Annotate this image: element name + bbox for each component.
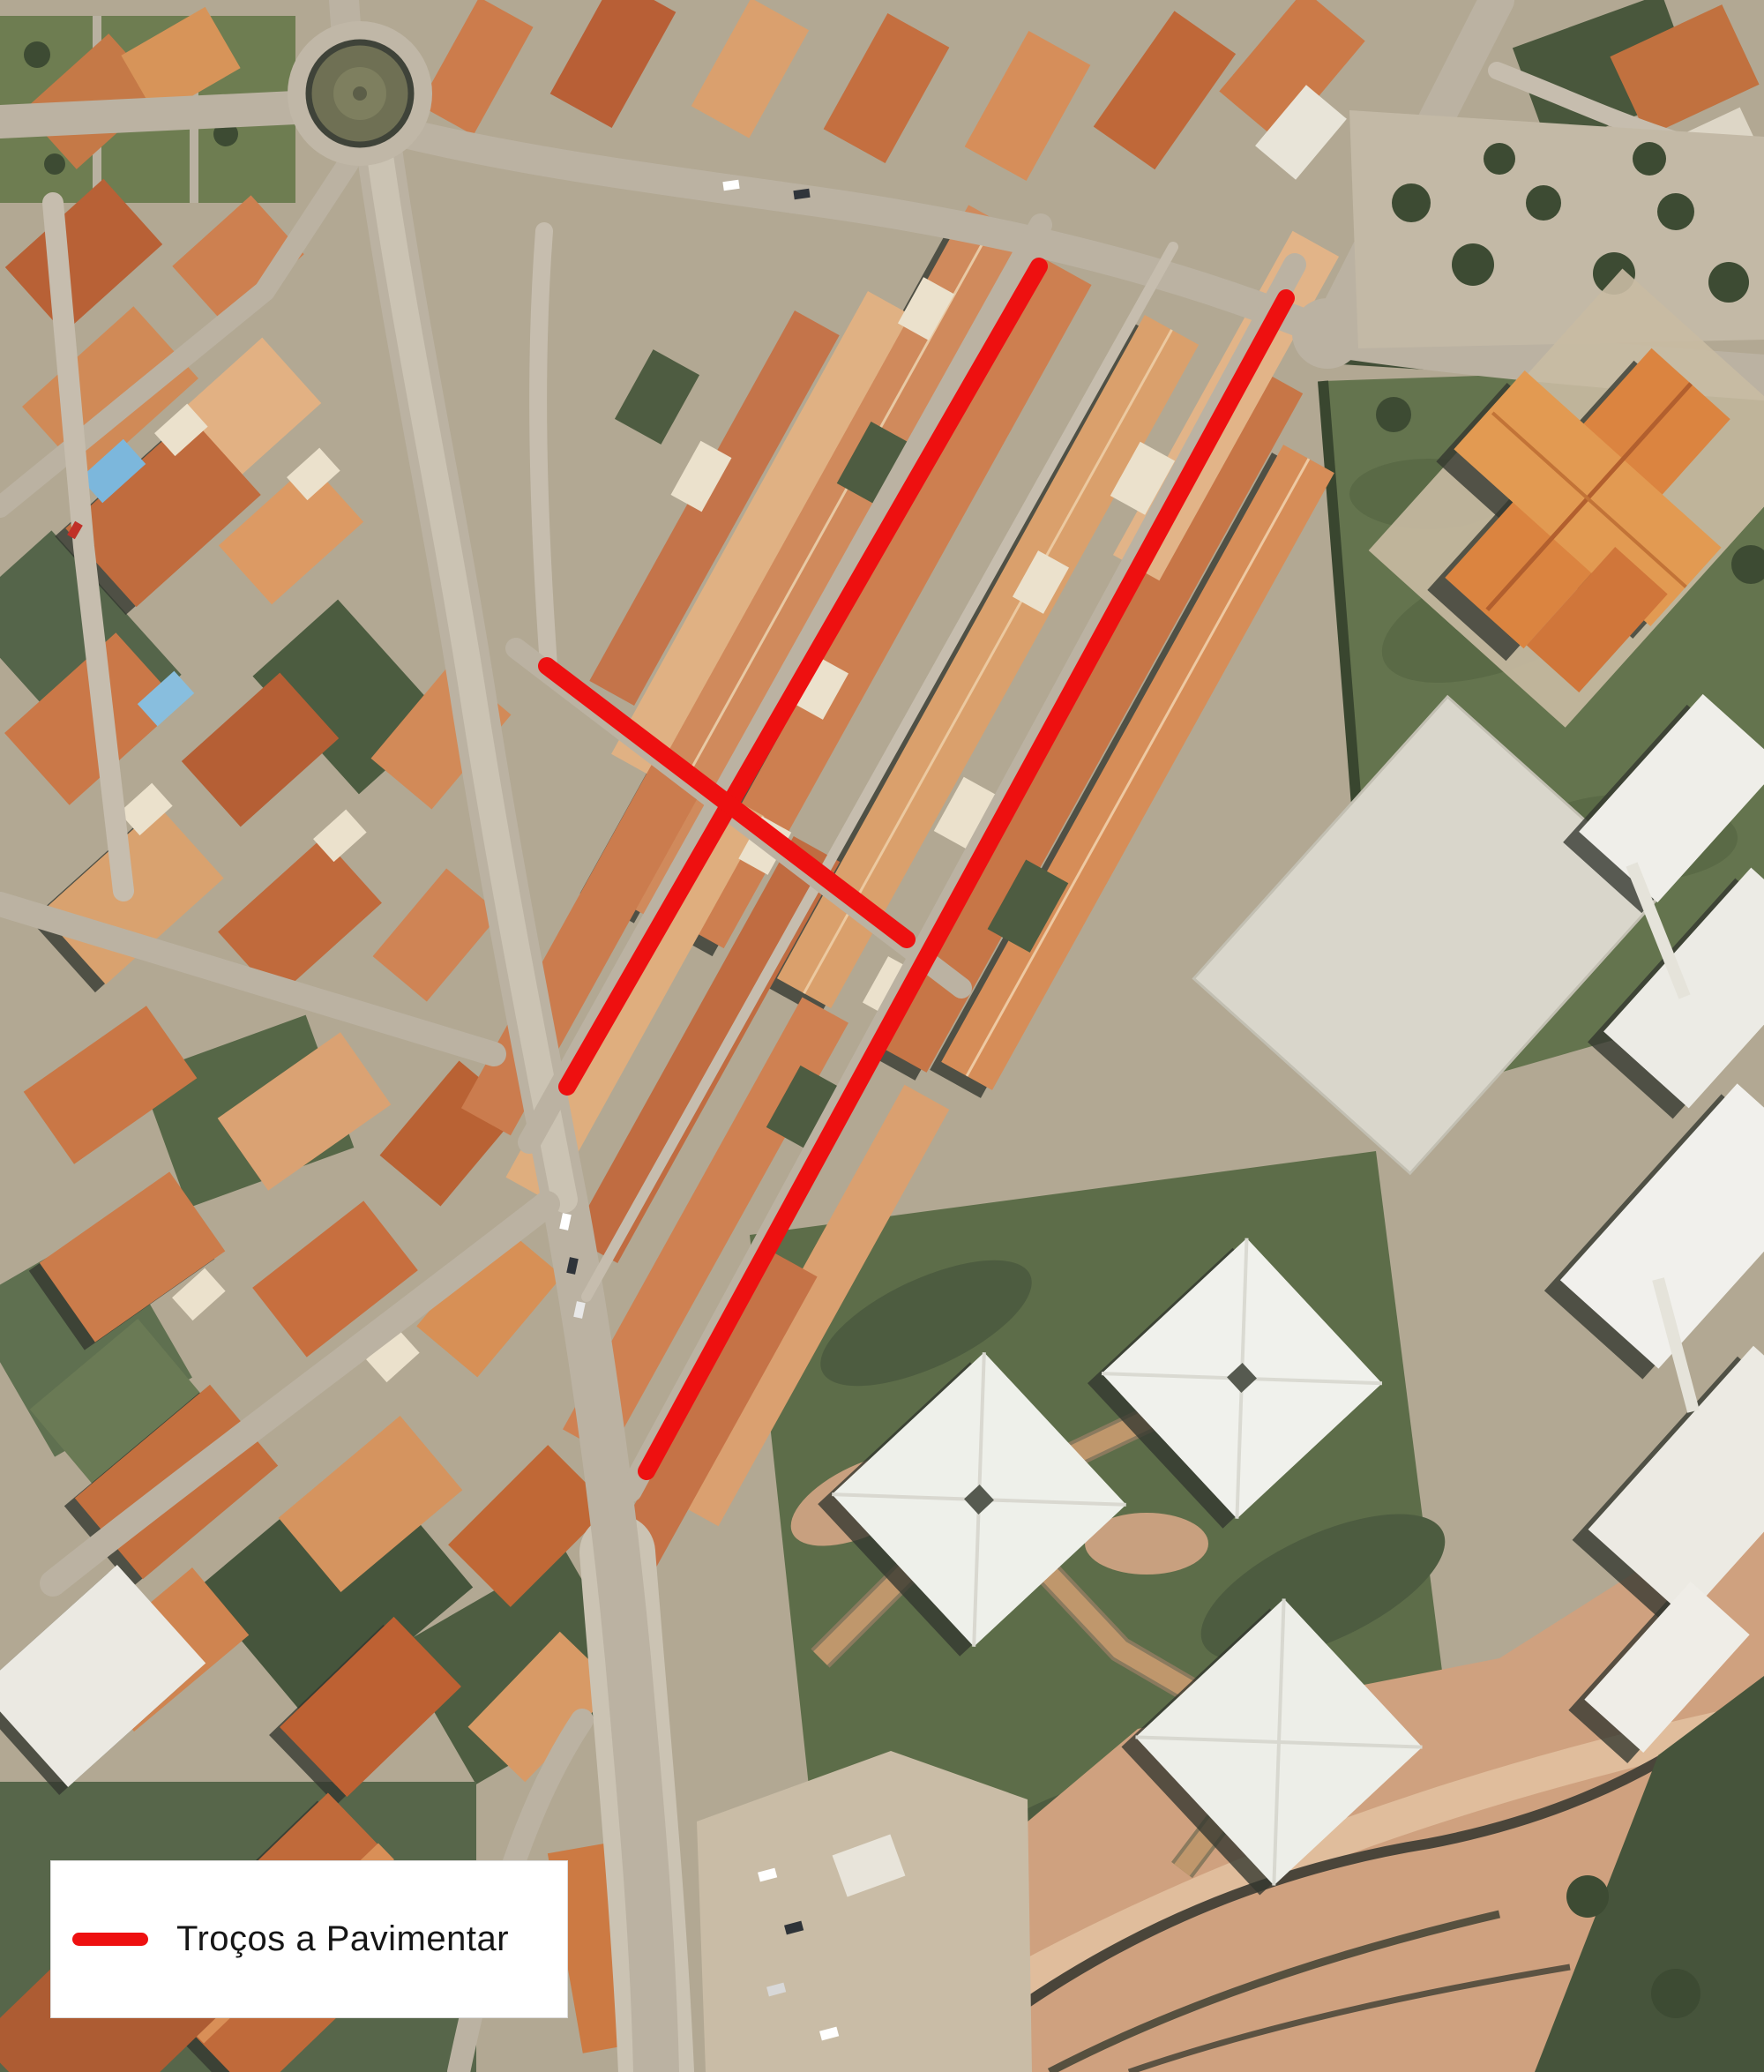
aerial-photo <box>0 0 1764 2072</box>
legend-label: Troços a Pavimentar <box>176 1919 509 1959</box>
legend: Troços a Pavimentar <box>50 1860 568 2018</box>
legend-red-line-symbol <box>72 1933 148 1946</box>
map-stage: Troços a Pavimentar <box>0 0 1764 2072</box>
parking-area <box>1349 110 1764 348</box>
roundabout <box>288 21 432 166</box>
